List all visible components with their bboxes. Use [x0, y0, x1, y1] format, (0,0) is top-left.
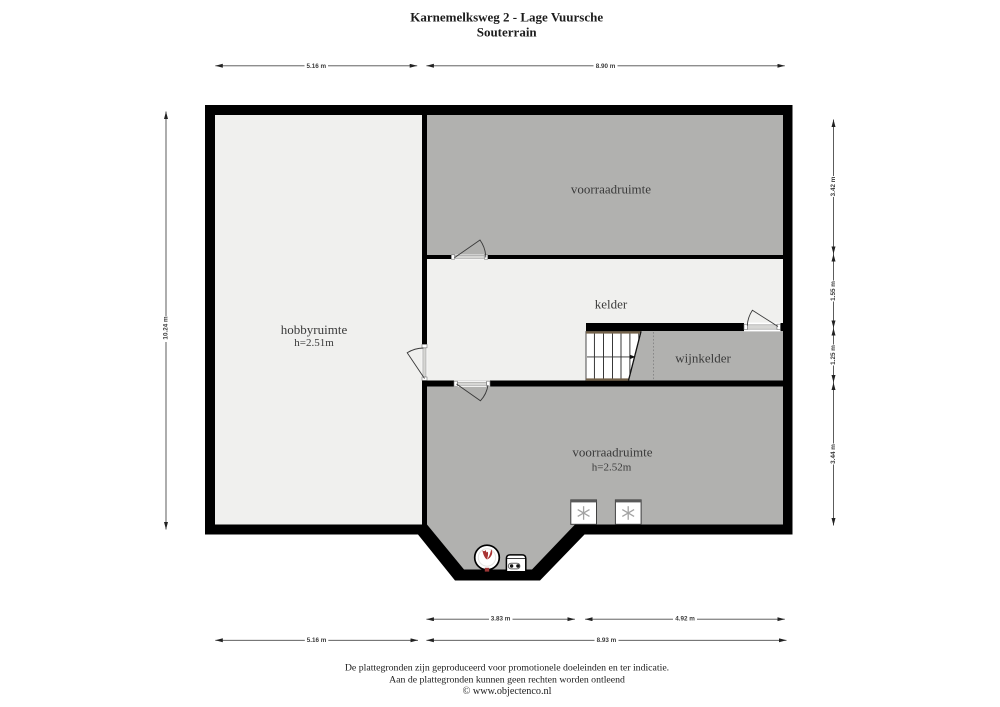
svg-text:4.92 m: 4.92 m [675, 616, 695, 623]
svg-text:5.16 m: 5.16 m [306, 63, 326, 70]
svg-text:h=2.51m: h=2.51m [294, 337, 334, 349]
svg-text:Souterrain: Souterrain [477, 25, 538, 40]
svg-text:voorraadruimte: voorraadruimte [572, 445, 652, 460]
svg-text:1.55 m: 1.55 m [830, 281, 837, 301]
svg-text:De plattegronden zijn geproduc: De plattegronden zijn geproduceerd voor … [345, 663, 669, 674]
svg-text:voorraadruimte: voorraadruimte [571, 182, 651, 197]
svg-text:© www.objectenco.nl: © www.objectenco.nl [463, 686, 552, 697]
svg-text:3.44 m: 3.44 m [830, 444, 837, 464]
svg-text:1.25 m: 1.25 m [830, 345, 837, 365]
svg-text:hobbyruimte: hobbyruimte [281, 322, 348, 337]
svg-text:8.90 m: 8.90 m [596, 63, 616, 70]
svg-text:kelder: kelder [595, 297, 628, 312]
svg-text:5.16 m: 5.16 m [307, 637, 327, 644]
svg-text:wijnkelder: wijnkelder [675, 351, 731, 366]
svg-text:Aan de plattegronden kunnen ge: Aan de plattegronden kunnen geen rechten… [389, 675, 625, 686]
svg-text:10.24 m: 10.24 m [163, 316, 170, 340]
svg-text:h=2.52m: h=2.52m [592, 462, 632, 474]
svg-text:Karnemelksweg 2 - Lage Vuursch: Karnemelksweg 2 - Lage Vuursche [410, 10, 603, 25]
svg-text:8.93 m: 8.93 m [597, 637, 617, 644]
svg-text:3.42 m: 3.42 m [830, 176, 837, 196]
svg-text:3.83 m: 3.83 m [491, 616, 511, 623]
